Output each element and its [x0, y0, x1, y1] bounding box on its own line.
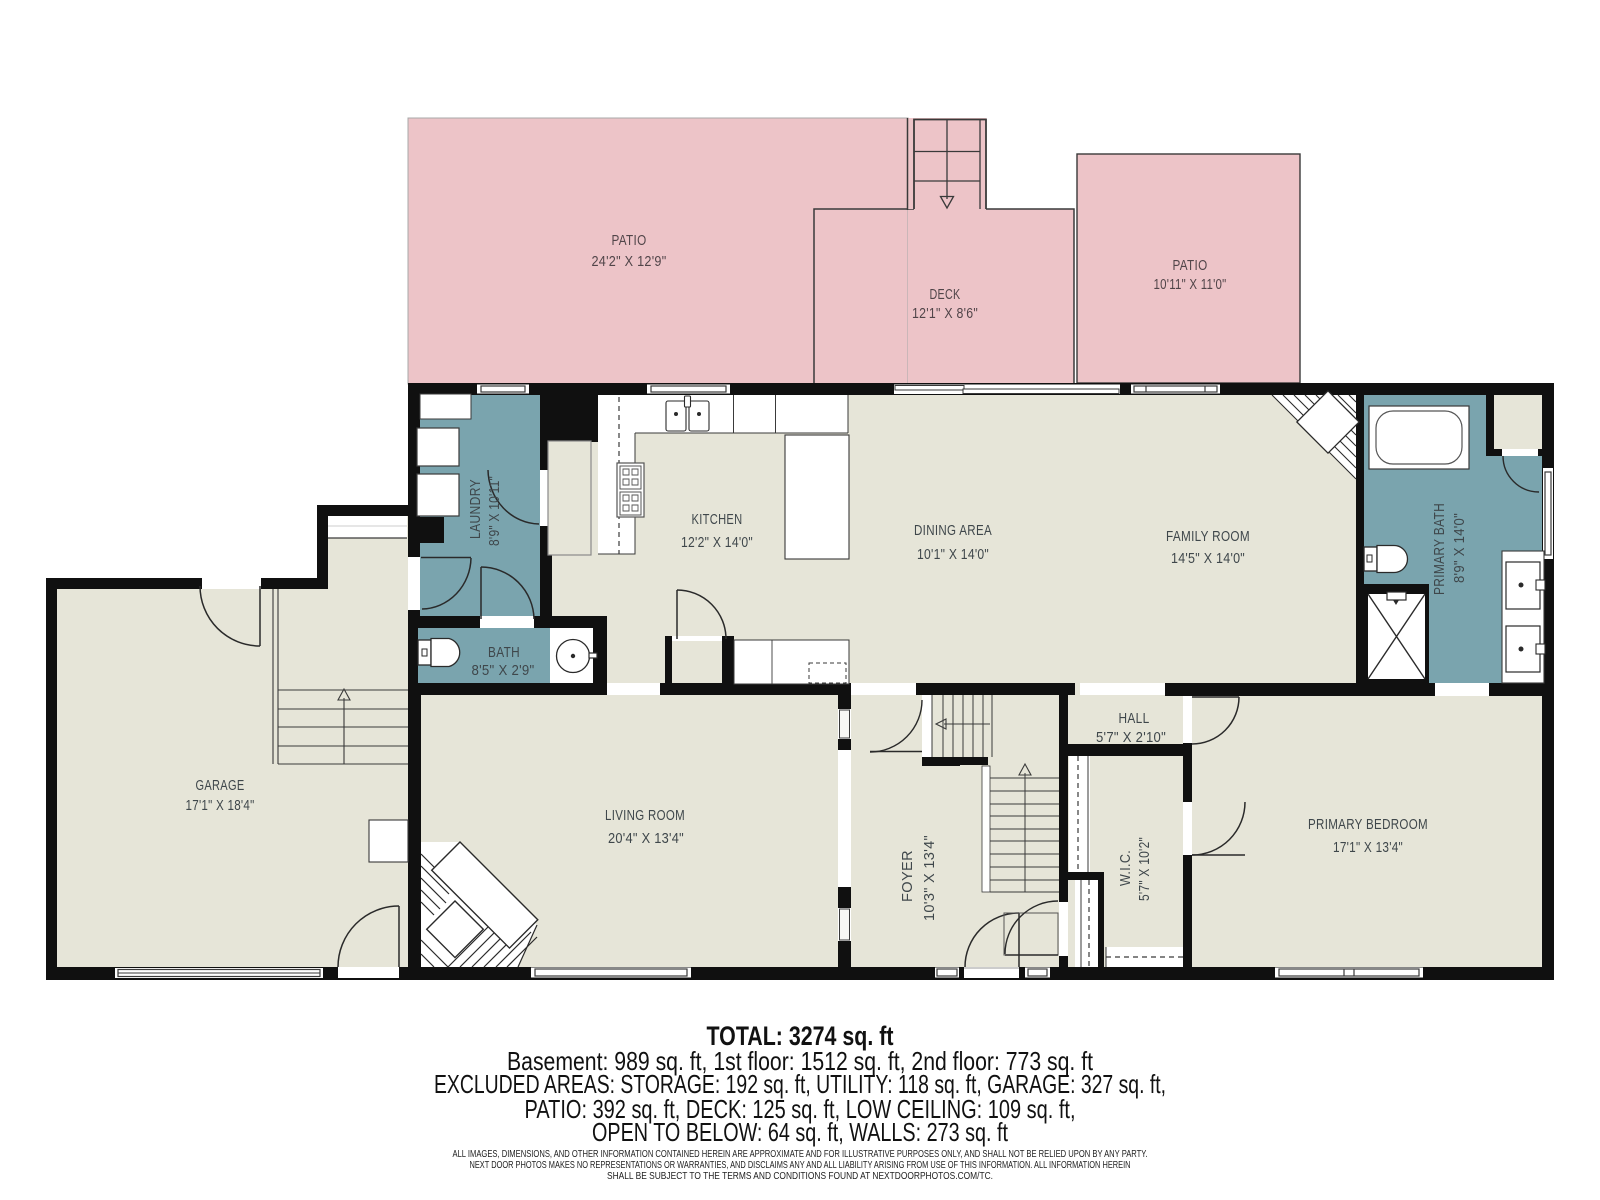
svg-text:GARAGE: GARAGE [196, 778, 245, 794]
svg-text:NEXT DOOR PHOTOS MAKES NO REPR: NEXT DOOR PHOTOS MAKES NO REPRESENTATION… [470, 1160, 1131, 1171]
svg-text:12'1" X 8'6": 12'1" X 8'6" [912, 306, 978, 322]
svg-text:14'5" X 14'0": 14'5" X 14'0" [1171, 551, 1245, 567]
svg-text:10'3" X 13'4": 10'3" X 13'4" [922, 835, 938, 921]
svg-text:SHALL BE SUBJECT TO THE TERMS: SHALL BE SUBJECT TO THE TERMS AND CONDIT… [607, 1171, 993, 1182]
svg-text:HALL: HALL [1119, 711, 1150, 727]
svg-text:10'1" X 14'0": 10'1" X 14'0" [917, 547, 989, 563]
svg-text:8'5" X 2'9": 8'5" X 2'9" [472, 663, 535, 679]
svg-text:12'2" X 14'0": 12'2" X 14'0" [681, 535, 753, 551]
svg-text:LAUNDRY: LAUNDRY [468, 479, 484, 539]
svg-text:W.I.C.: W.I.C. [1118, 850, 1134, 886]
svg-text:BATH: BATH [488, 645, 520, 661]
svg-text:24'2" X 12'9": 24'2" X 12'9" [592, 254, 667, 270]
svg-text:8'9" X 14'0": 8'9" X 14'0" [1452, 513, 1468, 583]
svg-text:20'4" X 13'4": 20'4" X 13'4" [608, 831, 684, 847]
svg-text:PATIO: PATIO [612, 233, 647, 249]
svg-text:DECK: DECK [930, 287, 961, 303]
svg-text:LIVING ROOM: LIVING ROOM [605, 808, 685, 824]
svg-text:10'11" X 11'0": 10'11" X 11'0" [1154, 277, 1227, 293]
svg-text:8'9" X 10'11": 8'9" X 10'11" [487, 476, 503, 546]
svg-text:5'7" X 10'2": 5'7" X 10'2" [1137, 837, 1153, 901]
svg-text:FOYER: FOYER [900, 850, 916, 902]
svg-text:PRIMARY BEDROOM: PRIMARY BEDROOM [1308, 817, 1428, 833]
svg-text:PATIO: PATIO [1173, 258, 1208, 274]
svg-text:17'1" X 18'4": 17'1" X 18'4" [186, 798, 255, 814]
svg-text:ALL IMAGES, DIMENSIONS, AND OT: ALL IMAGES, DIMENSIONS, AND OTHER INFORM… [453, 1149, 1148, 1160]
svg-text:PRIMARY BATH: PRIMARY BATH [1432, 503, 1448, 595]
svg-text:DINING AREA: DINING AREA [914, 523, 992, 539]
svg-text:17'1" X 13'4": 17'1" X 13'4" [1333, 840, 1403, 856]
svg-text:OPEN TO BELOW: 64 sq. ft, WALL: OPEN TO BELOW: 64 sq. ft, WALLS: 273 sq.… [592, 1117, 1009, 1147]
svg-text:KITCHEN: KITCHEN [692, 512, 743, 528]
svg-text:FAMILY ROOM: FAMILY ROOM [1166, 529, 1250, 545]
svg-text:5'7" X 2'10": 5'7" X 2'10" [1096, 730, 1166, 746]
